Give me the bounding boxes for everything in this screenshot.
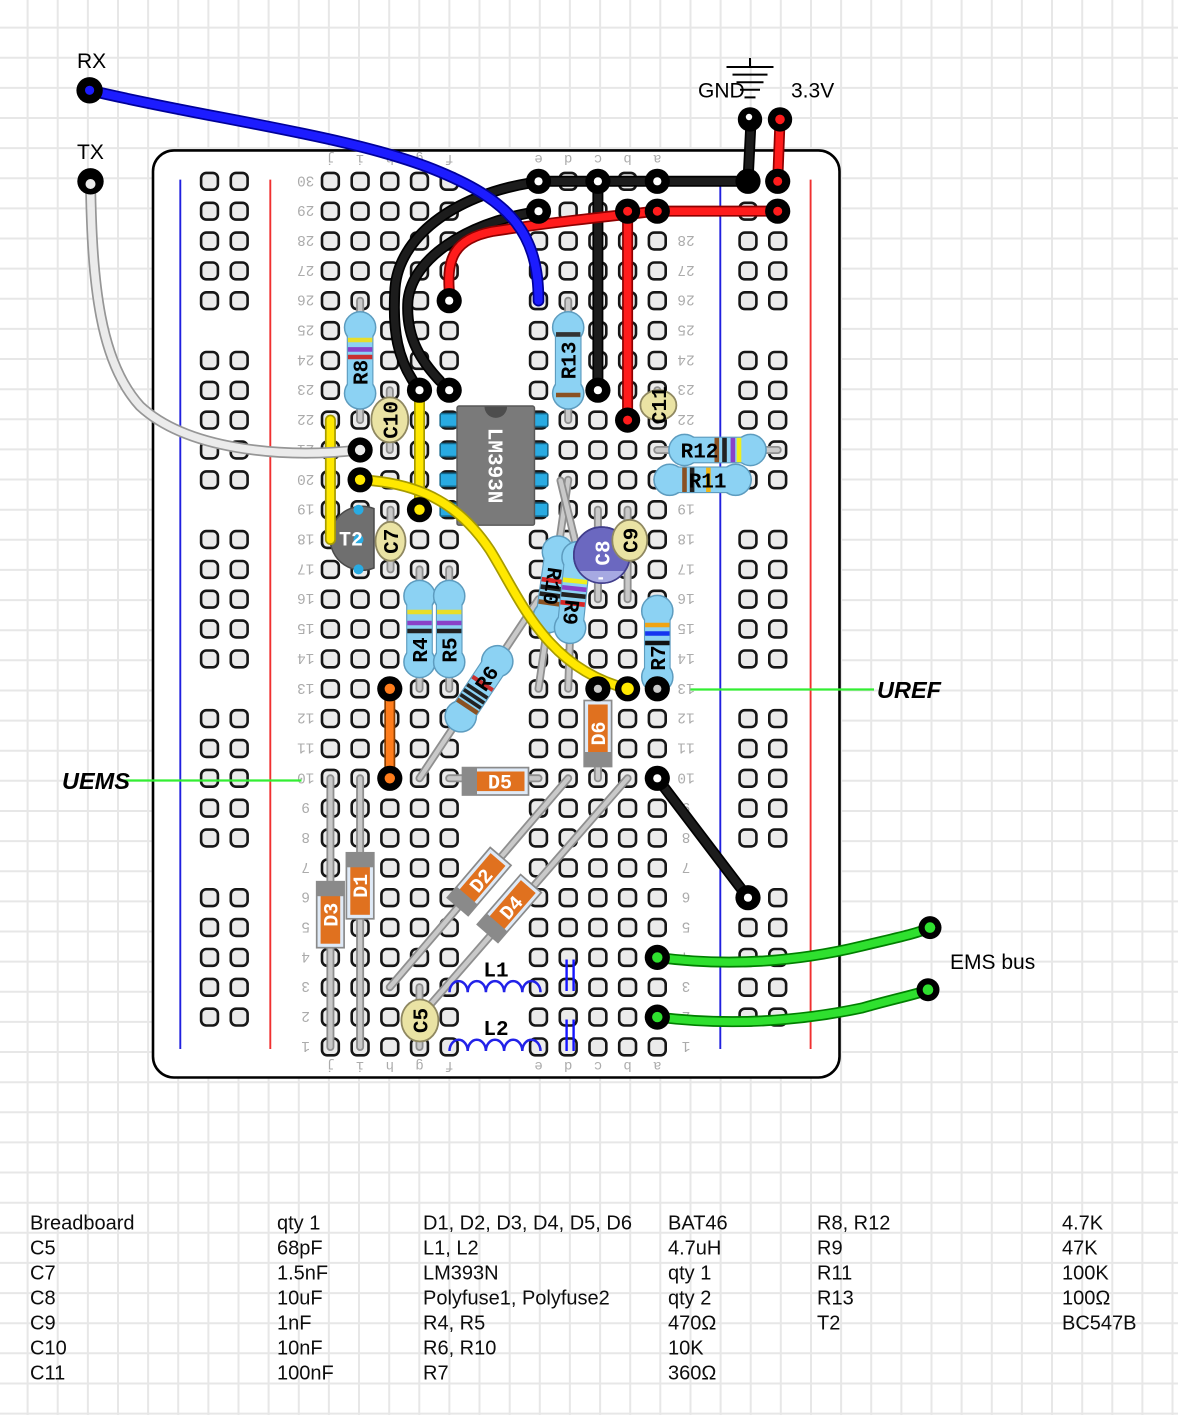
svg-text:12: 12 [297, 709, 314, 725]
svg-text:R13: R13 [817, 1288, 854, 1310]
svg-text:17: 17 [297, 559, 314, 575]
svg-text:29: 29 [297, 201, 314, 217]
svg-text:C10: C10 [30, 1338, 67, 1360]
svg-text:28: 28 [297, 231, 314, 247]
svg-text:11: 11 [677, 739, 694, 755]
svg-text:e: e [534, 150, 542, 166]
svg-text:20: 20 [297, 470, 314, 486]
svg-text:23: 23 [677, 380, 694, 396]
svg-text:10K: 10K [668, 1338, 704, 1360]
svg-text:22: 22 [677, 410, 694, 426]
svg-text:10uF: 10uF [277, 1288, 323, 1310]
svg-text:c: c [594, 150, 602, 166]
svg-text:10nF: 10nF [277, 1338, 323, 1360]
svg-text:24: 24 [677, 350, 694, 366]
svg-text:12: 12 [677, 709, 694, 725]
svg-text:a: a [653, 150, 661, 166]
svg-text:R8: R8 [352, 360, 375, 385]
svg-text:d: d [564, 1057, 572, 1073]
svg-text:R9: R9 [817, 1238, 843, 1260]
svg-text:C7: C7 [382, 529, 405, 554]
svg-text:4.7uH: 4.7uH [668, 1238, 721, 1260]
svg-text:100K: 100K [1062, 1263, 1109, 1285]
svg-text:1: 1 [301, 1037, 310, 1053]
svg-text:6: 6 [682, 888, 691, 904]
svg-text:R12: R12 [681, 442, 719, 465]
svg-text:25: 25 [677, 321, 694, 337]
svg-text:25: 25 [297, 321, 314, 337]
svg-text:C11: C11 [30, 1363, 65, 1385]
svg-text:7: 7 [301, 858, 310, 874]
svg-text:R4: R4 [411, 637, 434, 662]
svg-text:4: 4 [301, 947, 310, 963]
svg-text:1nF: 1nF [277, 1313, 311, 1335]
svg-text:C7: C7 [30, 1263, 56, 1285]
svg-text:R7: R7 [423, 1363, 449, 1385]
svg-text:14: 14 [297, 649, 314, 665]
svg-text:15: 15 [677, 619, 694, 635]
svg-text:i: i [356, 1057, 364, 1073]
svg-text:19: 19 [297, 500, 314, 516]
svg-text:8: 8 [682, 828, 691, 844]
svg-text:R13: R13 [560, 341, 583, 379]
svg-text:470Ω: 470Ω [668, 1313, 716, 1335]
svg-text:C9: C9 [30, 1313, 56, 1335]
svg-text:24: 24 [297, 350, 314, 366]
svg-text:10: 10 [297, 768, 314, 784]
svg-text:3: 3 [301, 977, 310, 993]
svg-text:19: 19 [677, 500, 694, 516]
svg-text:7: 7 [682, 858, 691, 874]
svg-text:UREF: UREF [877, 677, 942, 703]
svg-text:C9: C9 [621, 528, 644, 553]
svg-text:D1, D2, D3, D4, D5, D6: D1, D2, D3, D4, D5, D6 [423, 1213, 632, 1235]
svg-text:C5: C5 [411, 1008, 434, 1033]
svg-text:26: 26 [297, 291, 314, 307]
svg-text:BC547B: BC547B [1062, 1313, 1137, 1335]
svg-text:D1: D1 [351, 874, 374, 898]
svg-text:R4, R5: R4, R5 [423, 1313, 485, 1335]
svg-text:R11: R11 [817, 1263, 852, 1285]
svg-text:C11: C11 [650, 386, 673, 424]
svg-text:3.3V: 3.3V [791, 80, 834, 103]
svg-text:1.5nF: 1.5nF [277, 1263, 328, 1285]
svg-text:c: c [594, 1057, 602, 1073]
svg-text:R9: R9 [556, 598, 582, 625]
svg-text:360Ω: 360Ω [668, 1363, 716, 1385]
svg-text:L1: L1 [483, 961, 508, 984]
svg-text:LM393N: LM393N [481, 428, 504, 504]
svg-text:10: 10 [677, 768, 694, 784]
svg-text:18: 18 [677, 530, 694, 546]
svg-text:T2: T2 [817, 1313, 840, 1335]
svg-text:R8, R12: R8, R12 [817, 1213, 890, 1235]
svg-text:f: f [445, 1057, 453, 1073]
svg-text:-: - [598, 567, 604, 587]
svg-text:BAT46: BAT46 [668, 1213, 728, 1235]
svg-text:R5: R5 [441, 637, 464, 662]
svg-text:9: 9 [301, 798, 310, 814]
svg-text:17: 17 [677, 559, 694, 575]
svg-text:11: 11 [297, 739, 314, 755]
svg-text:g: g [415, 1057, 423, 1073]
svg-text:68pF: 68pF [277, 1238, 323, 1260]
svg-text:23: 23 [297, 380, 314, 396]
svg-text:8: 8 [301, 828, 310, 844]
svg-text:D6: D6 [589, 721, 612, 745]
svg-text:e: e [534, 1057, 542, 1073]
svg-text:28: 28 [677, 231, 694, 247]
svg-text:T2: T2 [339, 530, 363, 553]
svg-text:100nF: 100nF [277, 1363, 334, 1385]
svg-text:C8: C8 [30, 1288, 56, 1310]
svg-text:27: 27 [677, 261, 694, 277]
svg-text:6: 6 [301, 888, 310, 904]
svg-text:j: j [326, 1057, 334, 1073]
svg-text:13: 13 [677, 679, 694, 695]
svg-text:30: 30 [297, 171, 314, 187]
svg-text:UEMS: UEMS [62, 768, 130, 794]
svg-text:5: 5 [301, 918, 310, 934]
svg-text:TX: TX [77, 141, 104, 164]
svg-text:a: a [653, 1057, 661, 1073]
svg-text:27: 27 [297, 261, 314, 277]
svg-text:f: f [445, 150, 453, 166]
svg-text:4.7K: 4.7K [1062, 1213, 1104, 1235]
svg-text:EMS bus: EMS bus [950, 951, 1035, 974]
svg-text:2: 2 [301, 1007, 310, 1023]
svg-text:5: 5 [682, 918, 691, 934]
svg-text:D3: D3 [321, 903, 344, 927]
svg-text:qty 2: qty 2 [668, 1288, 711, 1310]
svg-text:13: 13 [297, 679, 314, 695]
svg-text:Polyfuse1, Polyfuse2: Polyfuse1, Polyfuse2 [423, 1288, 610, 1310]
svg-text:3: 3 [682, 977, 691, 993]
svg-text:L2: L2 [483, 1019, 508, 1042]
svg-text:16: 16 [677, 589, 694, 605]
svg-text:qty 1: qty 1 [277, 1213, 320, 1235]
svg-text:C5: C5 [30, 1238, 56, 1260]
svg-text:D5: D5 [488, 773, 512, 796]
svg-text:R11: R11 [689, 471, 727, 494]
svg-text:1: 1 [682, 1037, 691, 1053]
svg-text:16: 16 [297, 589, 314, 605]
svg-text:26: 26 [677, 291, 694, 307]
svg-text:14: 14 [677, 649, 694, 665]
svg-text:R7: R7 [649, 645, 672, 670]
svg-text:47K: 47K [1062, 1238, 1098, 1260]
svg-text:100Ω: 100Ω [1062, 1288, 1110, 1310]
svg-text:qty 1: qty 1 [668, 1263, 711, 1285]
svg-text:R6, R10: R6, R10 [423, 1338, 496, 1360]
svg-text:LM393N: LM393N [423, 1263, 499, 1285]
svg-text:Breadboard: Breadboard [30, 1213, 135, 1235]
svg-text:b: b [623, 150, 631, 166]
svg-text:RX: RX [77, 50, 106, 73]
svg-text:d: d [564, 150, 572, 166]
svg-text:h: h [386, 1057, 394, 1073]
svg-text:22: 22 [297, 410, 314, 426]
svg-text:15: 15 [297, 619, 314, 635]
svg-text:L1, L2: L1, L2 [423, 1238, 479, 1260]
svg-text:b: b [623, 1057, 631, 1073]
svg-text:j: j [326, 150, 334, 166]
svg-text:C10: C10 [381, 401, 404, 439]
svg-text:18: 18 [297, 530, 314, 546]
